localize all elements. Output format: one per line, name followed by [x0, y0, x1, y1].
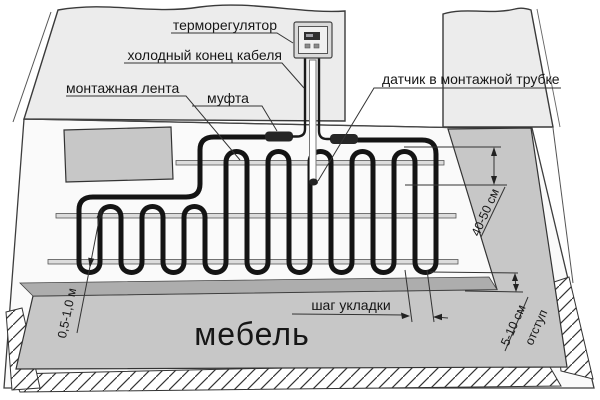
laying-step-label: шаг укладки	[311, 297, 390, 313]
coupling-left	[265, 132, 293, 142]
sensor-label: датчик в монтажной трубке	[382, 71, 560, 87]
thermostat-label: терморегулятор	[173, 17, 277, 33]
thermostat-button-left	[305, 44, 310, 48]
mounting-tape-label: монтажная лента	[66, 80, 179, 96]
coupling-right	[330, 134, 358, 144]
wall-right	[443, 8, 553, 127]
cold-end-label: холодный конец кабеля	[128, 47, 282, 63]
diagram-canvas: 40-50 см 5-10 см отступ 0,5-1,0 м шаг ук…	[0, 0, 600, 400]
corner-blank-zone	[64, 127, 173, 182]
thermostat-unit	[294, 22, 332, 58]
coupling-label: муфта	[207, 90, 249, 106]
thermostat-button-right	[314, 44, 319, 48]
sensor-tube	[310, 60, 317, 180]
furniture-label: мебель	[194, 316, 309, 352]
thermostat-display-digits	[306, 34, 313, 37]
sensor-tip	[309, 179, 318, 186]
heating-diagram: 40-50 см 5-10 см отступ 0,5-1,0 м шаг ук…	[0, 0, 600, 400]
